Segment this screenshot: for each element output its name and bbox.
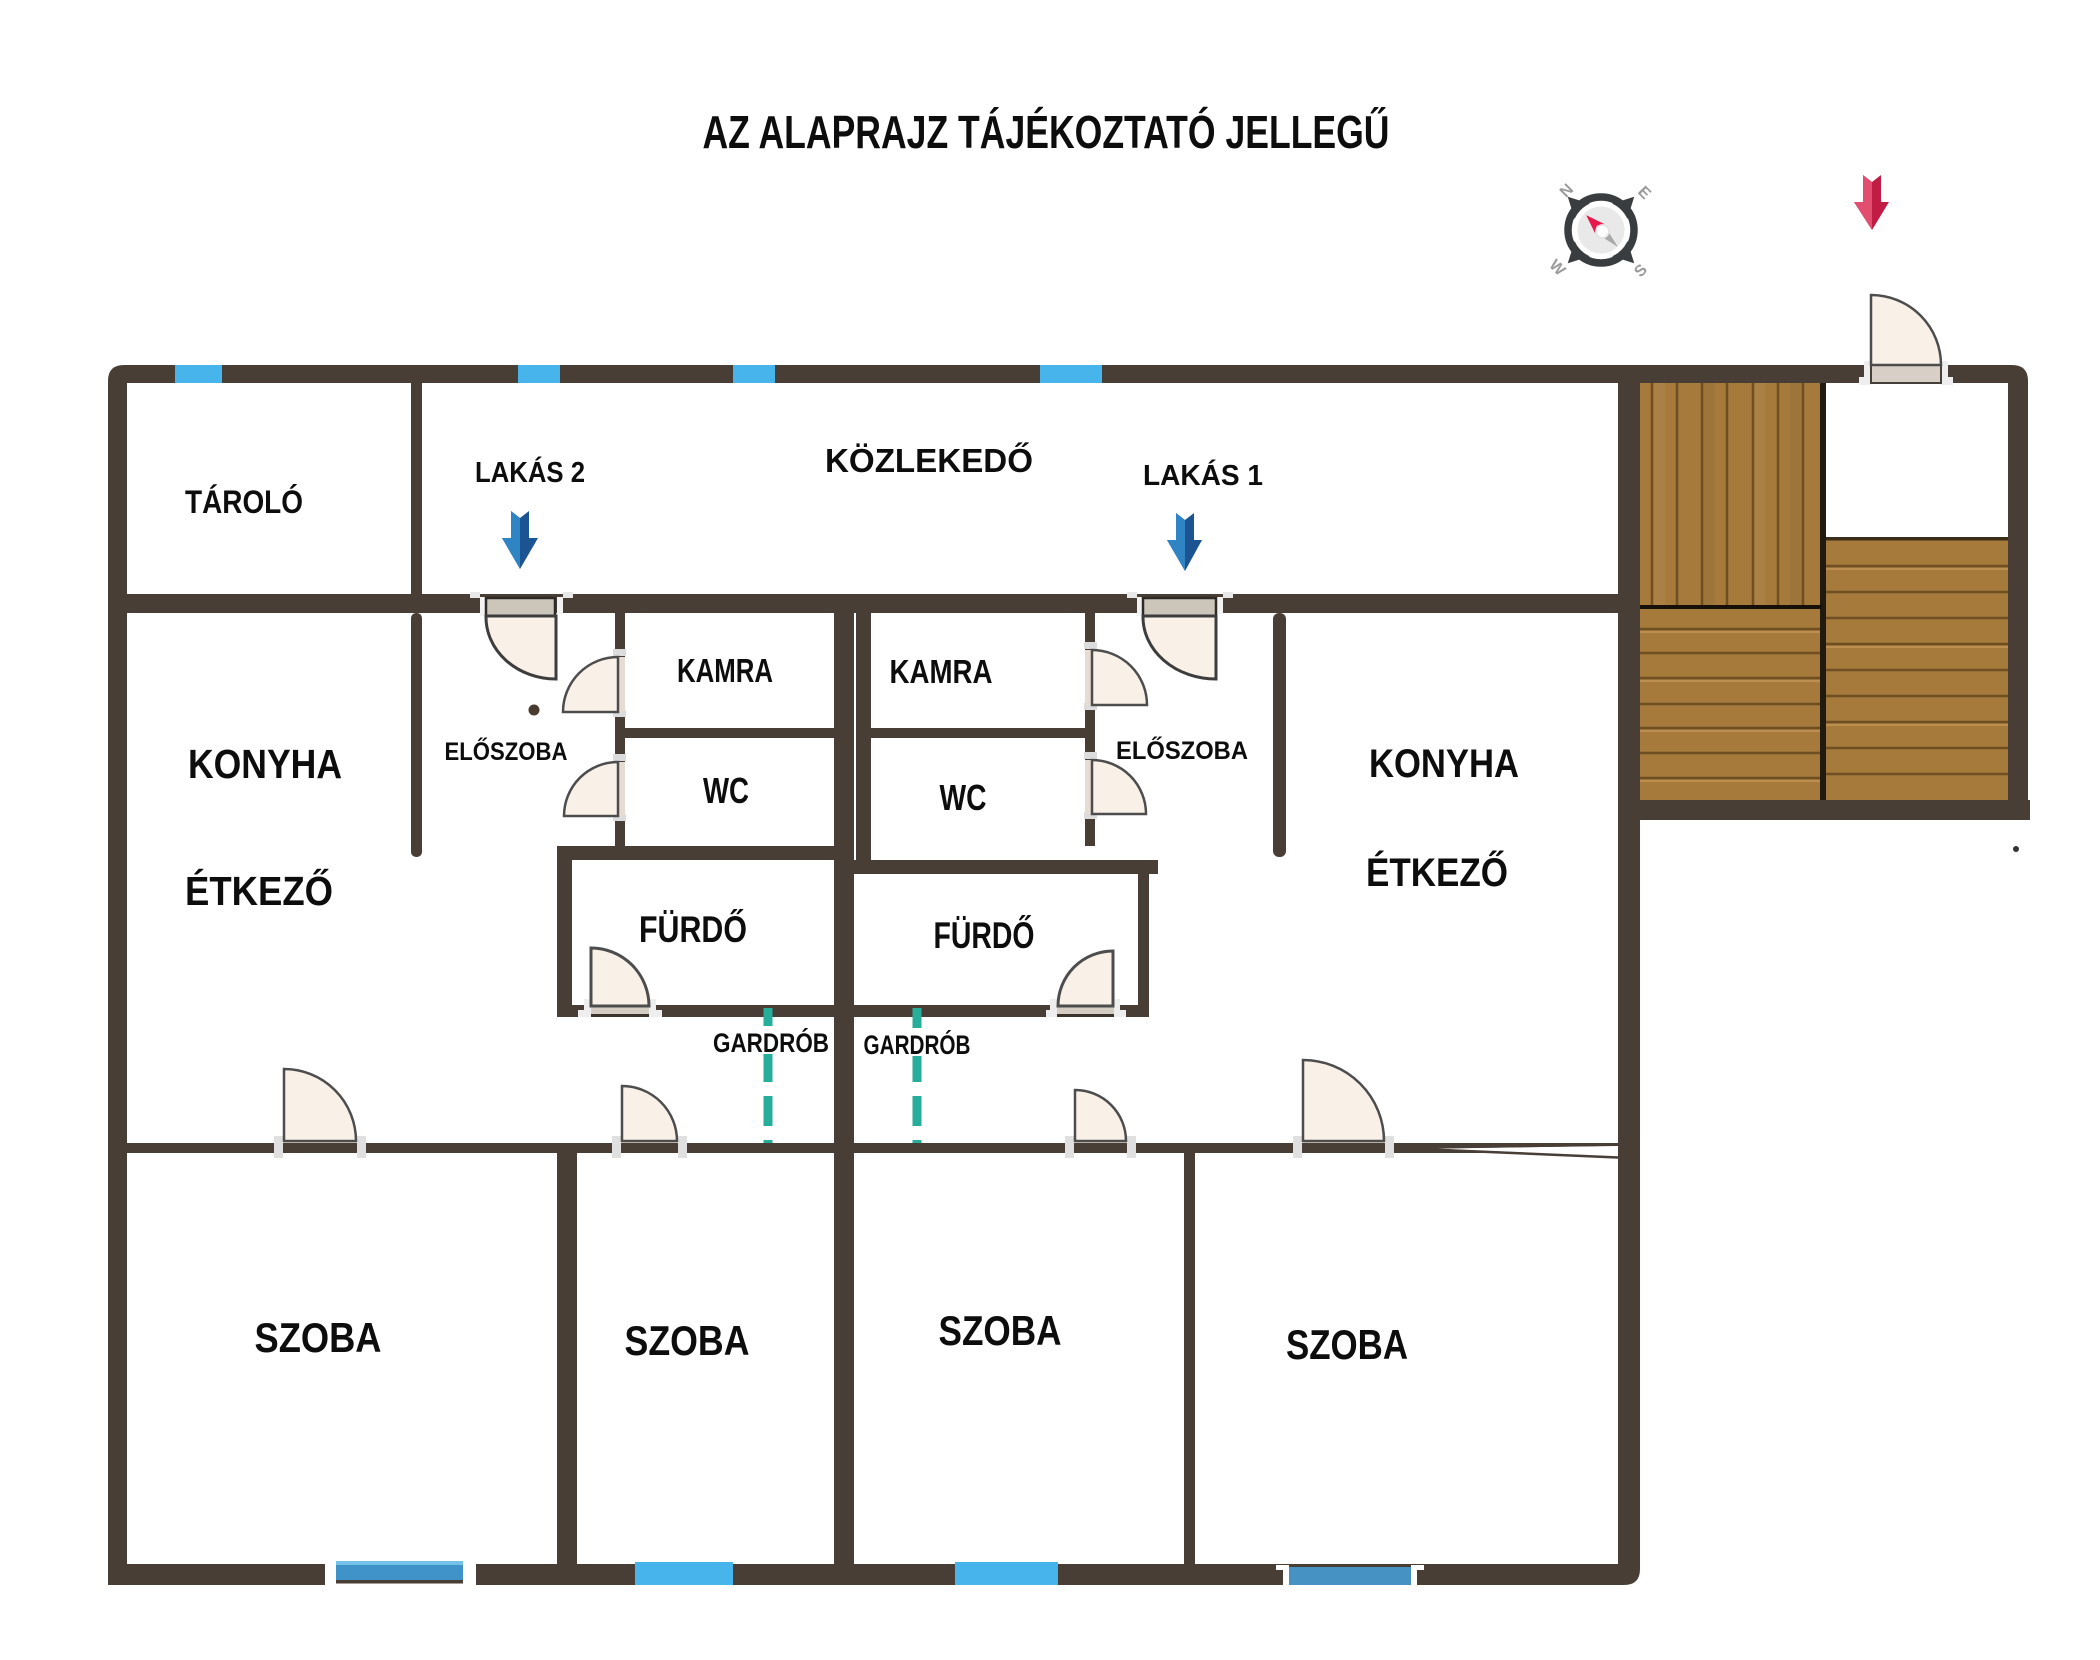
svg-text:KAMRA: KAMRA [890,653,993,690]
svg-text:WC: WC [940,777,987,818]
svg-text:SZOBA: SZOBA [1286,1321,1408,1368]
svg-text:FÜRDŐ: FÜRDŐ [934,914,1035,956]
svg-text:SZOBA: SZOBA [255,1314,382,1361]
svg-text:LAKÁS 1: LAKÁS 1 [1143,458,1263,492]
svg-text:LAKÁS 2: LAKÁS 2 [475,455,585,489]
svg-text:KONYHA: KONYHA [1369,742,1519,786]
svg-text:ÉTKEZŐ: ÉTKEZŐ [1366,849,1508,895]
svg-text:SZOBA: SZOBA [625,1317,750,1364]
svg-text:KÖZLEKEDŐ: KÖZLEKEDŐ [825,442,1033,479]
svg-text:GARDRÓB: GARDRÓB [713,1027,829,1058]
svg-text:ELŐSZOBA: ELŐSZOBA [445,737,568,766]
svg-text:GARDRÓB: GARDRÓB [864,1029,971,1060]
svg-text:KAMRA: KAMRA [677,652,773,689]
svg-text:WC: WC [703,770,749,811]
svg-text:AZ ALAPRAJZ TÁJÉKOZTATÓ JELLEG: AZ ALAPRAJZ TÁJÉKOZTATÓ JELLEGŰ [703,106,1390,158]
svg-text:KONYHA: KONYHA [188,741,342,787]
svg-text:TÁROLÓ: TÁROLÓ [185,484,303,520]
svg-text:FÜRDŐ: FÜRDŐ [639,908,747,950]
svg-text:SZOBA: SZOBA [939,1307,1062,1354]
svg-text:ELŐSZOBA: ELŐSZOBA [1116,736,1248,765]
svg-text:ÉTKEZŐ: ÉTKEZŐ [185,868,333,914]
